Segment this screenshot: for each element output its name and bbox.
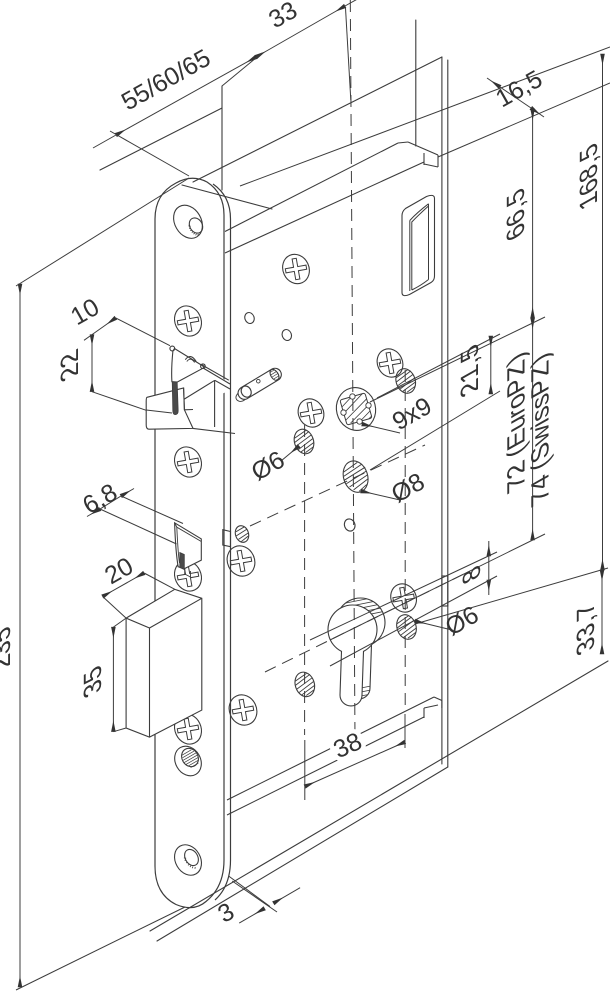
svg-text:74 (SwissPZ): 74 (SwissPZ)	[526, 348, 554, 512]
